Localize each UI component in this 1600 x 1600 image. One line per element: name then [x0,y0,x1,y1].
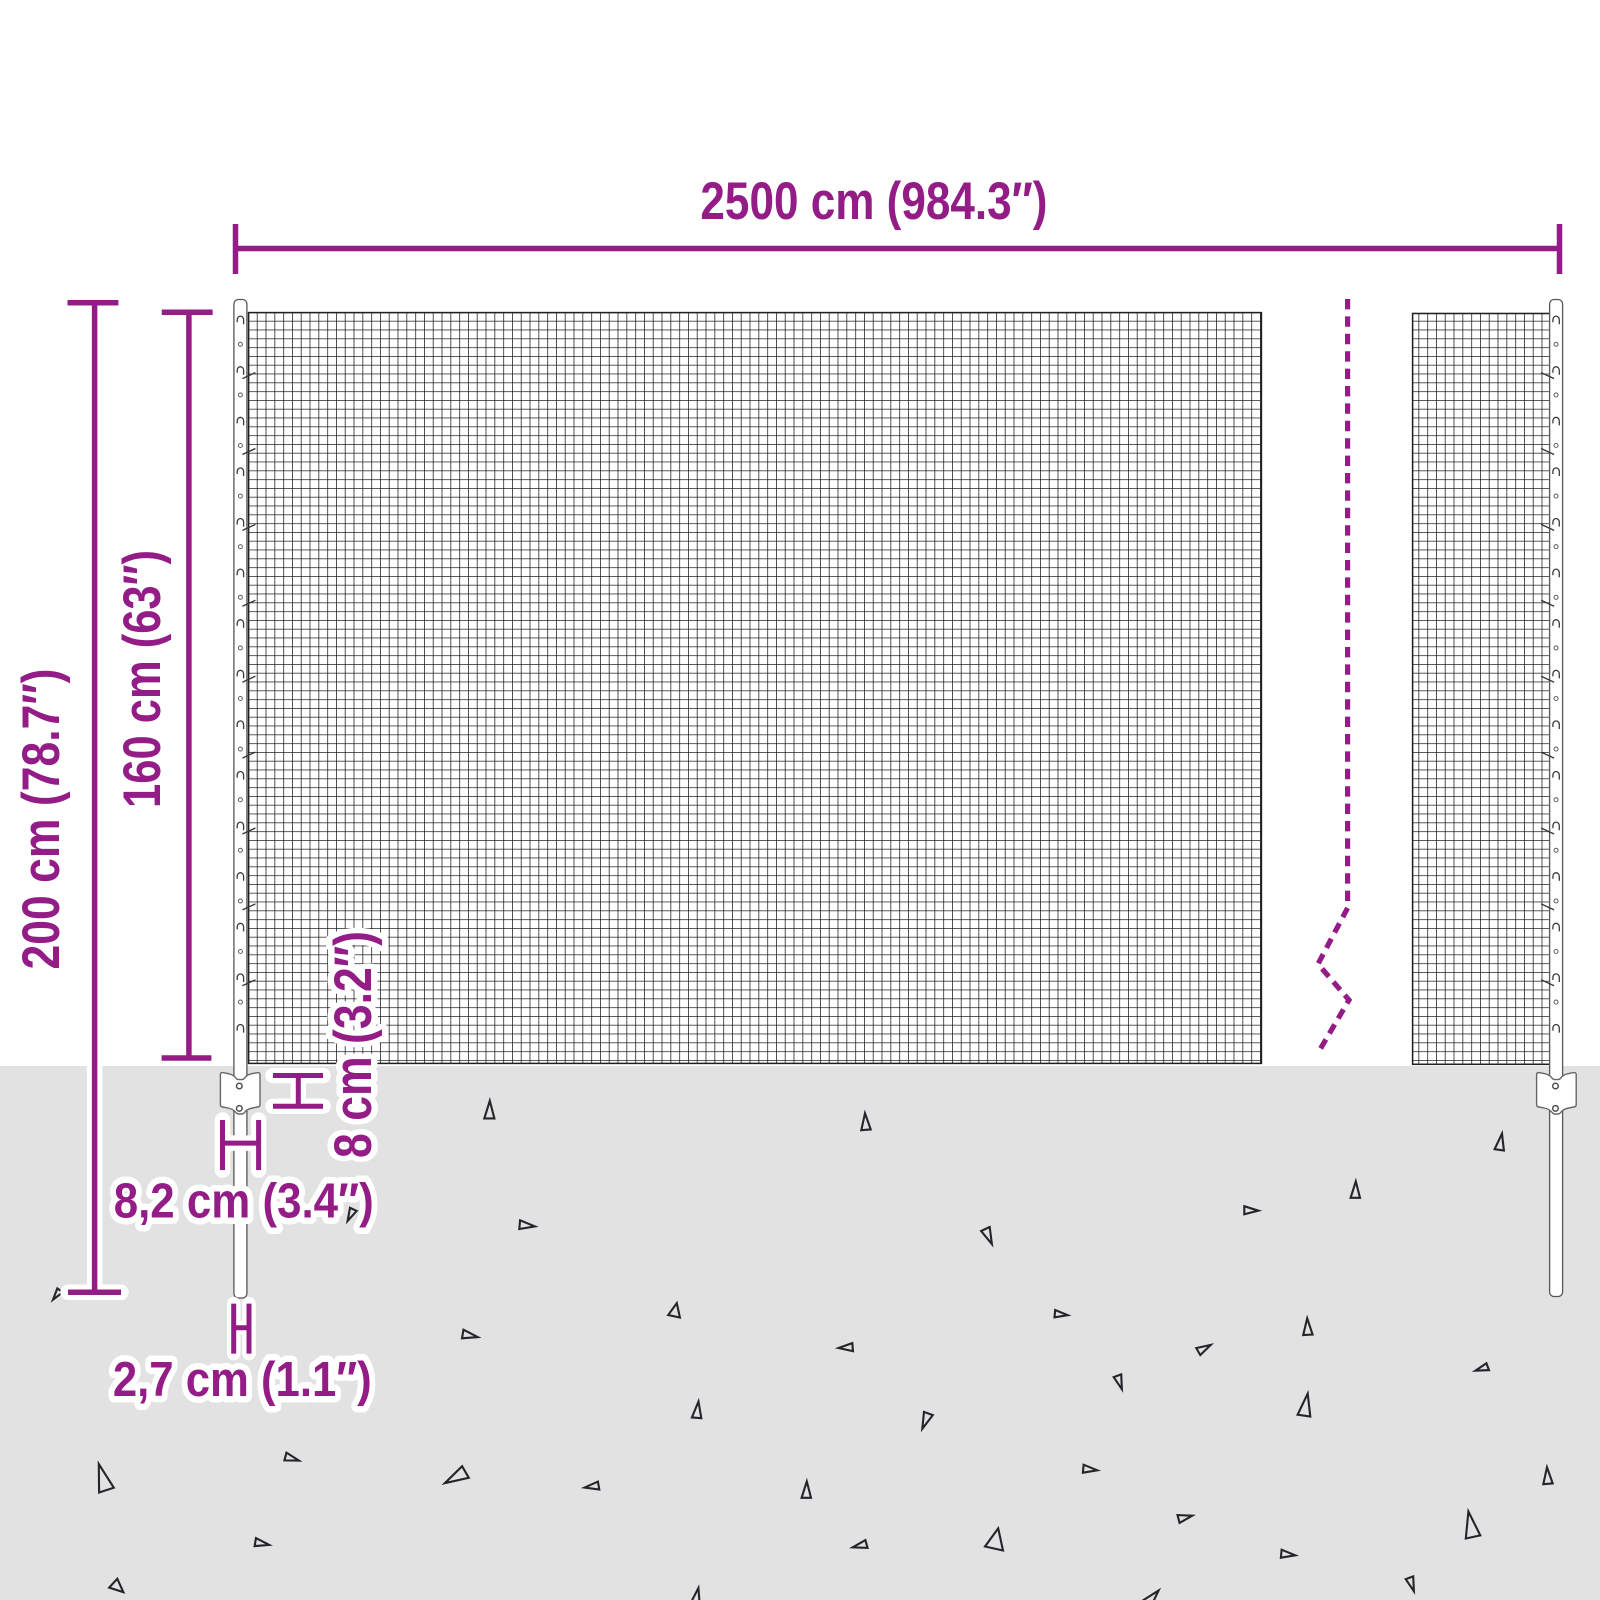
svg-text:200 cm (78.7″): 200 cm (78.7″) [12,669,70,970]
svg-text:2,7 cm (1.1″): 2,7 cm (1.1″) [113,1352,372,1407]
svg-text:8,2 cm (3.4″): 8,2 cm (3.4″) [114,1173,374,1228]
svg-text:8 cm (3.2″): 8 cm (3.2″) [324,931,382,1158]
svg-text:160 cm (63″): 160 cm (63″) [113,550,172,808]
svg-text:2500 cm (984.3″): 2500 cm (984.3″) [700,172,1047,231]
